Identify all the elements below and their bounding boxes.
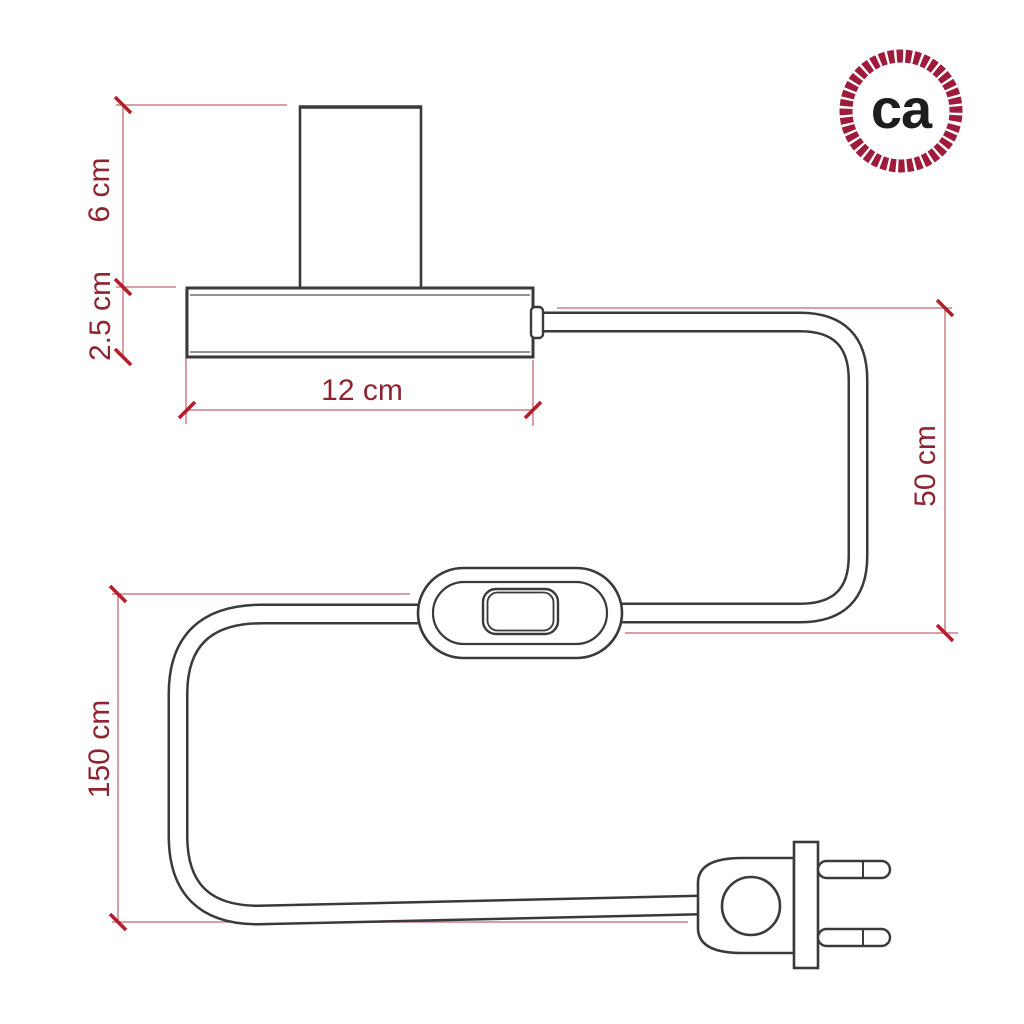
label-cable-switch-to-plug: 150 cm — [85, 700, 115, 798]
product-dimension-diagram: 6 cm 2.5 cm 12 cm 50 cm 150 cm ca — [0, 0, 1024, 1024]
plug-face — [794, 842, 818, 968]
label-socket-height: 6 cm — [85, 157, 115, 222]
plug-screw-hole — [722, 877, 780, 935]
cable-gland — [531, 307, 543, 338]
lamp-base — [187, 288, 543, 357]
brand-logo-text: ca — [871, 81, 931, 137]
power-cable-lower — [178, 614, 700, 915]
plug-pin-bottom — [818, 929, 890, 946]
label-base-width: 12 cm — [321, 376, 403, 406]
label-base-height: 2.5 cm — [86, 271, 116, 361]
dimension-ticks — [110, 97, 953, 930]
lamp-socket — [299, 107, 422, 288]
dimension-lines — [112, 105, 958, 922]
label-cable-base-to-switch: 50 cm — [911, 425, 941, 507]
switch-button — [483, 589, 558, 634]
inline-switch — [418, 568, 622, 658]
plug-pin-top — [818, 861, 890, 878]
brand-logo: ca — [839, 49, 963, 173]
euro-plug — [698, 842, 890, 968]
